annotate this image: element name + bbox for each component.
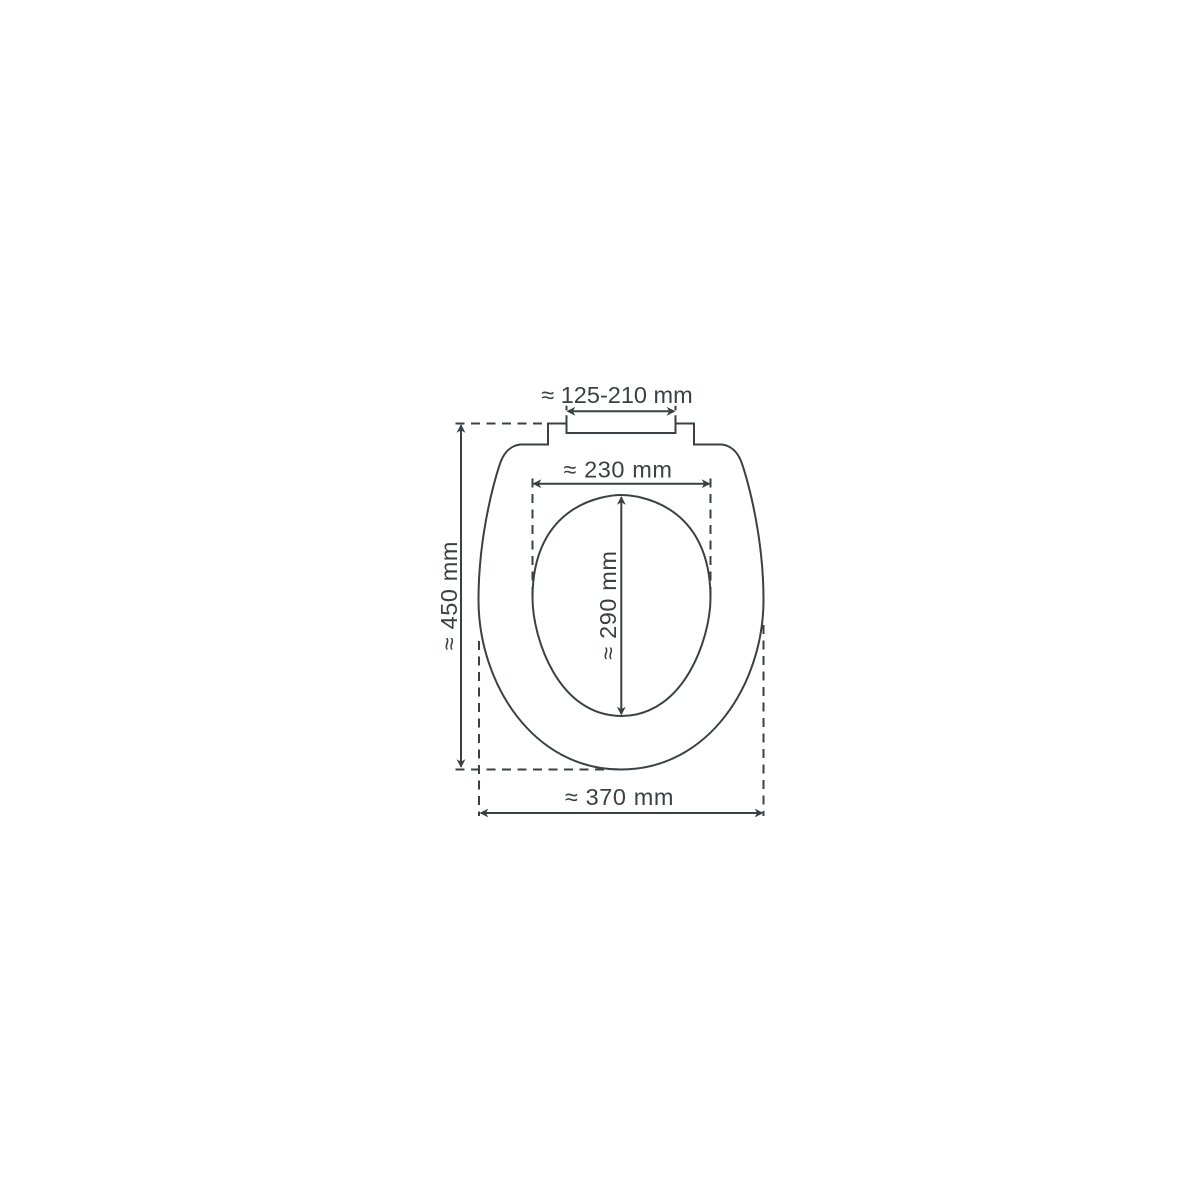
svg-text:≈ 290 mm: ≈ 290 mm xyxy=(595,550,621,659)
svg-text:≈ 450 mm: ≈ 450 mm xyxy=(436,541,462,650)
svg-text:≈ 370 mm: ≈ 370 mm xyxy=(565,784,674,810)
svg-text:≈ 125-210 mm: ≈ 125-210 mm xyxy=(541,382,692,408)
svg-text:≈ 230 mm: ≈ 230 mm xyxy=(563,456,672,482)
